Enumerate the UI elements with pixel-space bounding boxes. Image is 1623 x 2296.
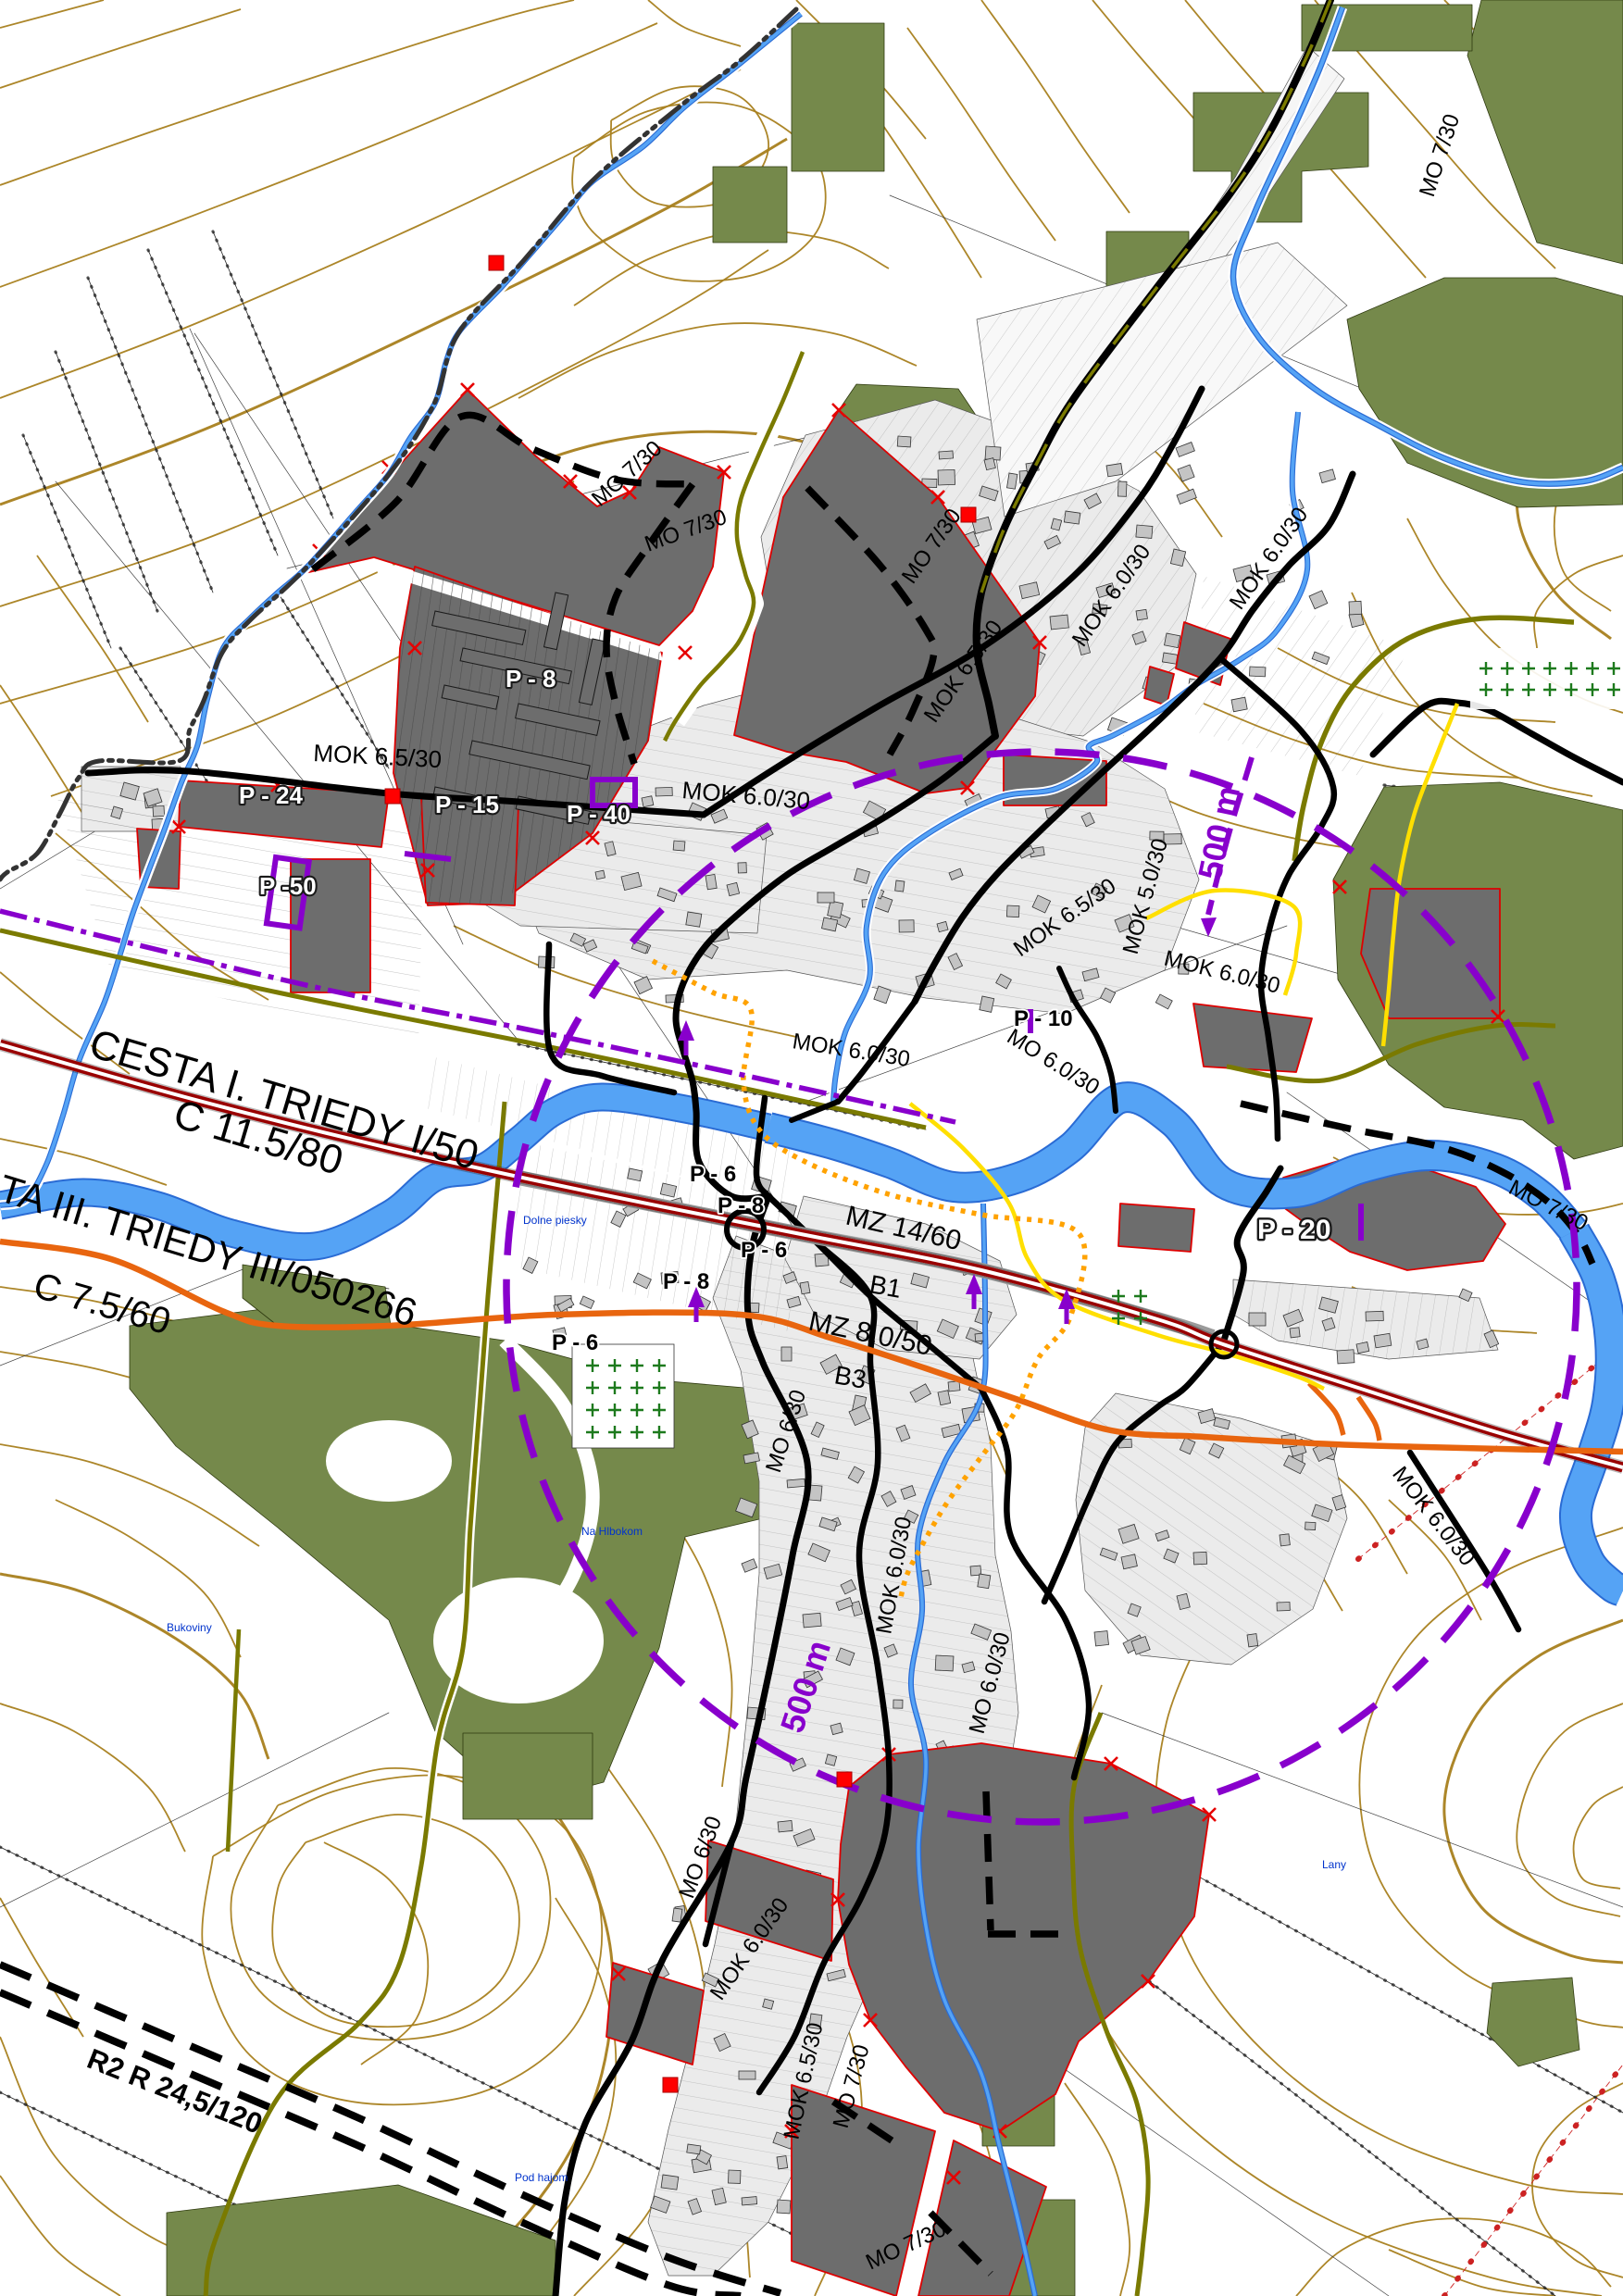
svg-text:B1: B1 — [868, 1269, 904, 1303]
svg-text:Bukoviny: Bukoviny — [167, 1621, 212, 1634]
svg-text:P -50: P -50 — [259, 872, 317, 900]
svg-text:Na Hlbokom: Na Hlbokom — [581, 1525, 643, 1538]
svg-text:Dolne piesky: Dolne piesky — [523, 1214, 587, 1227]
svg-text:P - 6: P - 6 — [690, 1162, 736, 1187]
svg-text:P - 20: P - 20 — [1257, 1215, 1331, 1245]
svg-text:P - 40: P - 40 — [567, 800, 630, 828]
svg-text:P - 8: P - 8 — [663, 1269, 709, 1294]
svg-text:B3: B3 — [832, 1360, 868, 1393]
svg-text:P - 6: P - 6 — [741, 1238, 787, 1263]
svg-text:P - 8: P - 8 — [718, 1193, 764, 1218]
svg-text:Pod hajom: Pod hajom — [515, 2171, 568, 2184]
svg-text:P - 24: P - 24 — [239, 781, 303, 809]
svg-text:Lany: Lany — [1322, 1858, 1346, 1871]
svg-text:P - 15: P - 15 — [435, 791, 499, 818]
svg-text:P - 6: P - 6 — [552, 1330, 598, 1355]
svg-text:P - 8: P - 8 — [506, 665, 556, 693]
